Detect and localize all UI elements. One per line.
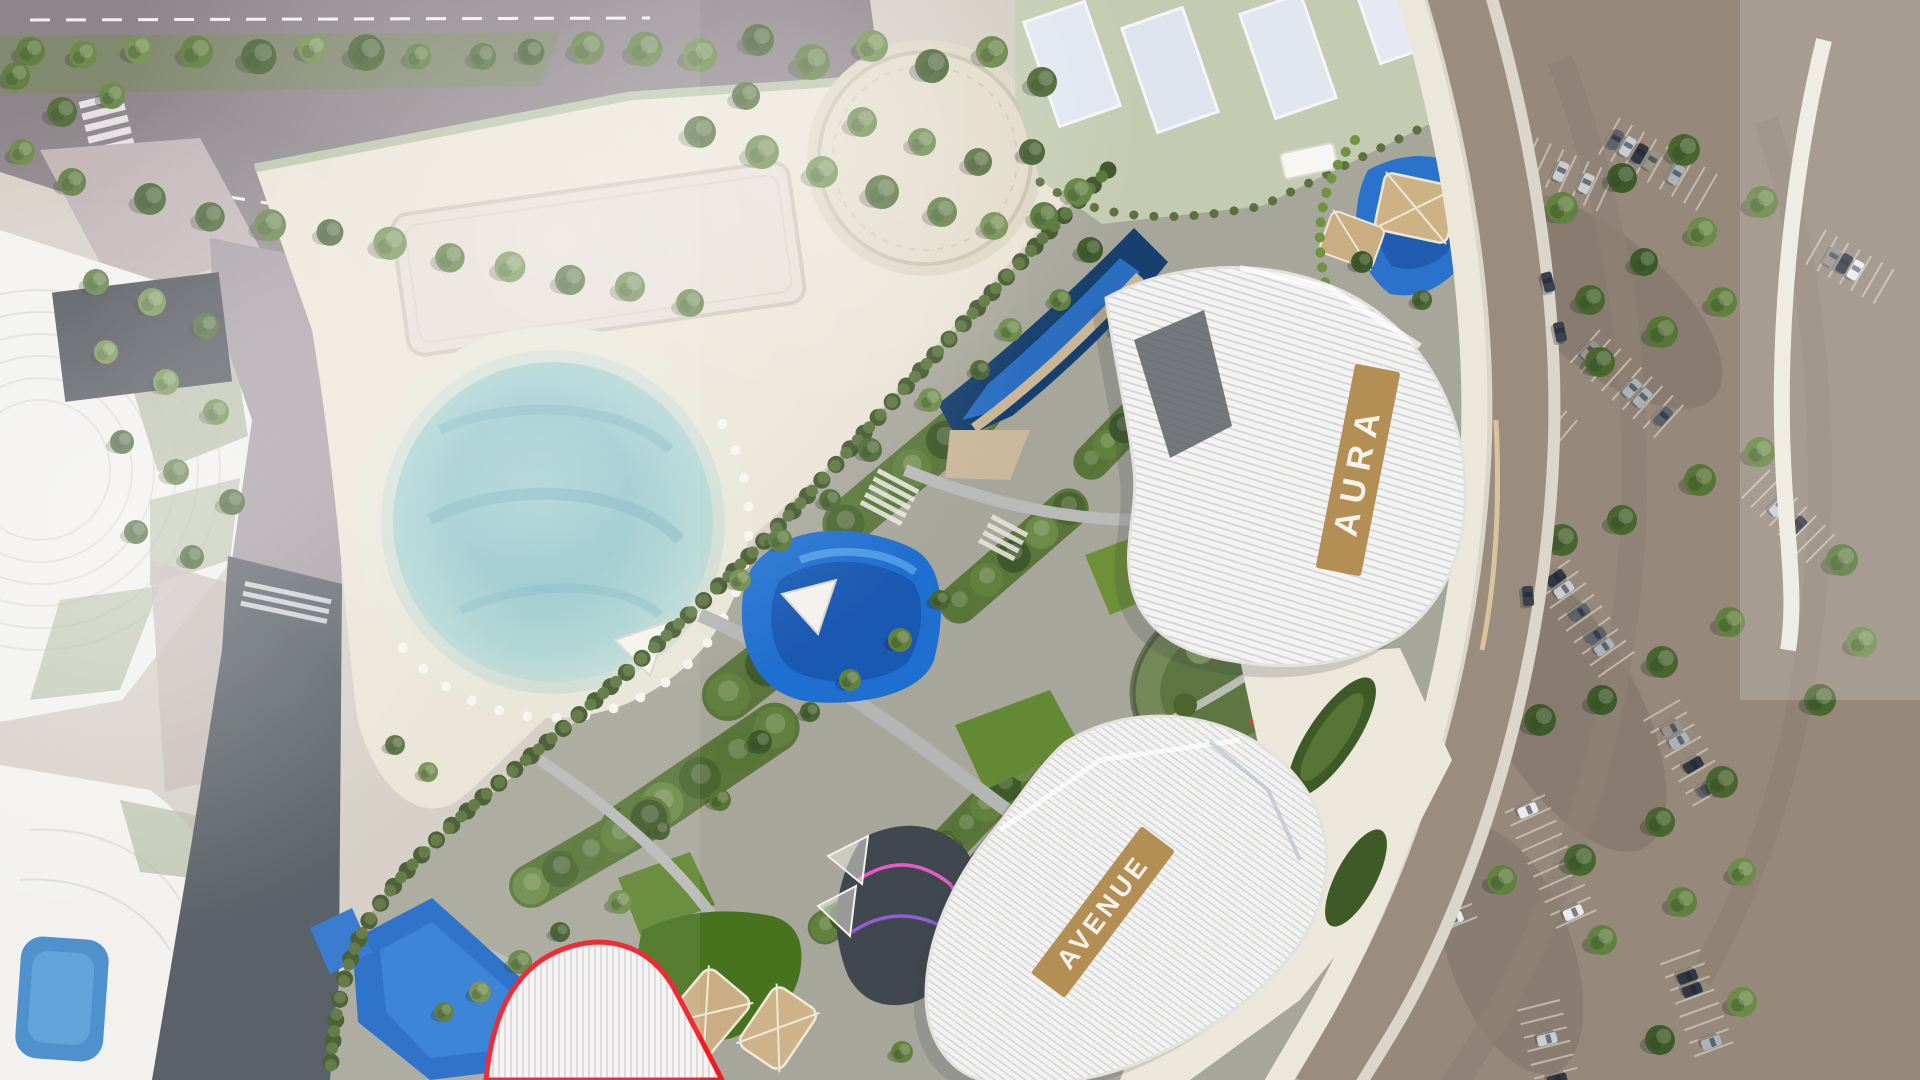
masterplan-canvas: AURA AVENUE [0,0,1920,1080]
exposure-wash [1740,0,1920,700]
masterplan-render: AURA AVENUE [0,0,1920,1080]
car [1519,586,1535,609]
exposure-wash [0,0,700,1080]
